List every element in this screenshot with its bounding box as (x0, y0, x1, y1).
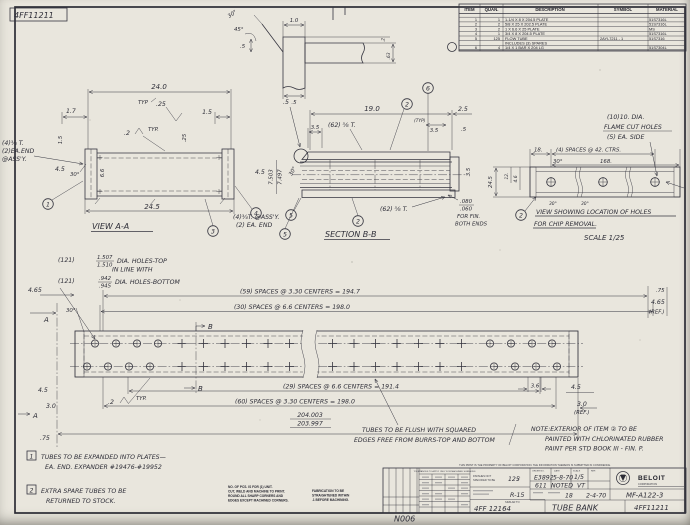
dim-half: .5 (283, 99, 289, 106)
holes-view-scale: SCALE 1/25 (584, 234, 625, 242)
fin-line1: FOR FIN. (457, 214, 480, 220)
general-notes: 1 TUBES TO BE EXPANDED INTO PLATES— EA. … (27, 451, 166, 505)
cell-item: 6 (475, 45, 477, 50)
paint-note-2: PAINTED WITH CHLORINATED RUBBER (545, 436, 663, 443)
note-2-line-2: RETURNED TO STOCK. (46, 498, 116, 505)
flame-note-1: (10)10. DIA. (607, 114, 644, 121)
angle-top: 30° (227, 9, 239, 20)
holes-top-label: DIA. HOLES-TOP (117, 258, 167, 265)
dim-4-5-left: 4.5 (38, 387, 48, 394)
balloon-6: 6 (426, 86, 430, 93)
pattern-number: 4FF 12164 (474, 505, 511, 513)
sp-2: CUT, WELD AND MACHINE TO PRINT. (228, 490, 285, 494)
cell-quan: 4 (498, 45, 501, 50)
row3-a: R-15 (510, 492, 524, 499)
col-desc: DESCRIPTION (535, 7, 564, 12)
holes-location-view: 18. (4) SPACES @ 42. CTRS. 30° 168. 24.5… (488, 114, 680, 242)
dim-6-6: 6.6 (100, 168, 106, 177)
holes-view-title-1: VIEW SHOWING LOCATION OF HOLES (536, 209, 651, 216)
table-row: 4 1 3/4 X 8 X 204.5 PLATE 51S7316L (475, 31, 668, 36)
dim-3-5-left: 3.5 (311, 125, 320, 131)
parts-table: ITEM QUAN. DESCRIPTION SYMBOL MATERIAL 1… (448, 4, 687, 52)
dim-3-0-left: 3.0 (46, 403, 56, 410)
holes-top-den: 1.510 (97, 263, 113, 269)
angle-30: 30° (553, 159, 563, 165)
angle-30: 30° (70, 172, 80, 178)
assy-note-1: (4)¾T. @ASS'Y. (233, 213, 279, 221)
view-aa-title: VIEW A-A (92, 222, 129, 231)
finish-label-2: SPECIFIED TO BE (473, 478, 495, 482)
cell-item: 5 (475, 36, 477, 41)
dim-4-5-right: 4.5 (255, 169, 265, 176)
balloon-3: 3 (211, 229, 215, 236)
dim-4-65-left: 4.65 (28, 287, 42, 294)
spaces-29: (29) SPACES @ 6.6 CENTERS = 191.4 (283, 383, 399, 391)
bank-weld-size: .2 (108, 399, 114, 406)
col-symbol: SYMBOL (614, 7, 633, 12)
table-row: 1 1 1-1/4 X 8 X 204.5 PLATE 51S7316L (475, 17, 668, 22)
dim-12: 12. (504, 173, 510, 180)
table-row: 3 2 1 X 6.6 X 25 PLATE MS (475, 26, 655, 31)
dim-3-6: 3.6 (531, 384, 540, 390)
holes-bot-label: DIA. HOLES-BOTTOM (115, 279, 180, 286)
cell-material: 51S7316 (649, 36, 665, 41)
dim-width: 1.0 (290, 18, 299, 24)
section-b-b: 19.0 2.5 .5 3.5 (62) ⅝ T. (TYP) 3.5 .5 3… (283, 83, 488, 240)
end-note-3: @ASS'Y. (2, 155, 27, 163)
dim-4-5-right: 4.5 (571, 384, 581, 391)
holes-bot-qty: (121) (58, 278, 75, 285)
holes-view-title-2: FOR CHIP REMOVAL. (534, 221, 597, 228)
fin-line2: BOTH ENDS (455, 222, 488, 228)
col-material: MATERIAL (656, 7, 678, 12)
section-a-top: A (43, 316, 49, 324)
break-angle-a: 30° (549, 201, 557, 207)
spaces-59: (59) SPACES @ 3.30 CENTERS = 194.7 (240, 288, 360, 296)
dim-25: .25 (156, 101, 166, 108)
note-2-number: 2 (30, 488, 34, 495)
angle-30: 30° (288, 166, 298, 178)
holes-mid-label: IN LINE WITH (112, 267, 153, 274)
dim-204-den: 203.997 (297, 421, 323, 428)
balloon-2-bottom: 2 (356, 219, 360, 226)
balloon-2-top: 2 (405, 102, 409, 109)
confidence-note: THIS PRINT IS THE PROPERTY OF BELOIT COR… (459, 463, 611, 467)
section-a-bottom: A (32, 412, 38, 420)
revision-balloon (448, 43, 457, 52)
flush-note-1: TUBES TO BE FLUSH WITH SQUARED (362, 427, 476, 434)
brand-name: BELOIT (638, 475, 665, 482)
row2-b: NOTED (551, 483, 573, 490)
spaces-30: (30) SPACES @ 6.6 CENTERS = 198.0 (234, 303, 350, 311)
note-1-line-1: TUBES TO BE EXPANDED INTO PLATES— (41, 454, 166, 461)
sheet-code: N006 (394, 515, 415, 524)
ref-bottom: (REF.) (574, 410, 589, 416)
title-block: THIS PRINT IS THE PROPERTY OF BELOIT COR… (383, 463, 686, 524)
dim-3-5-rot: 3.5 (466, 167, 472, 176)
row3-c: 2-4-70 (586, 493, 606, 500)
weld-prep-detail: .63 .2 1.0 45° 30° .5 .5 (227, 9, 396, 106)
dim-point2: .2 (381, 38, 387, 42)
paint-note-3: PAINT PER STD BOOK III - FIN. P. (545, 446, 644, 453)
row3-b: 18 (565, 493, 573, 500)
angle-30-left: 30° (66, 308, 76, 314)
col-quan: QUAN. (485, 7, 499, 12)
dim-75-bottom: .75 (40, 435, 50, 442)
cell-desc: 1/4 X 1 BAR X 204 LG (505, 45, 544, 50)
dim-18: 18. (534, 148, 543, 154)
sp-5: FABRICATION TO BE (312, 489, 344, 493)
assy-note-2: (2) EA. END (236, 222, 272, 229)
dim-75-right: .75 (656, 288, 665, 294)
weld-size: .2 (124, 130, 130, 137)
balloon-5: 5 (283, 232, 287, 239)
dim-4-65-right: 4.65 (651, 299, 665, 306)
paint-note-1: NOTE:EXTERIOR OF ITEM ② TO BE (531, 426, 637, 433)
standard-small-print: NO. OF PCS. IS FOR (1) UNIT. CUT, WELD A… (228, 485, 350, 503)
sp-4: EDGES EXCEPT MACHINED CORNERS. (228, 499, 289, 503)
order-label: ORDER NO. (532, 471, 545, 473)
flame-note-3: (5) EA. SIDE (607, 134, 644, 141)
finish-label-1: FINISHES NOT (473, 474, 492, 478)
corner-drawing-number: 4FF11211 (14, 11, 54, 20)
note-2-line-1: EXTRA SPARE TUBES TO BE (41, 488, 126, 495)
reference-drawing: MF-A122-3 (626, 492, 663, 500)
holes-bot-num: .942 (99, 276, 112, 282)
cell-material: 51S7304L (649, 45, 668, 50)
order-number: E3892 (534, 475, 554, 482)
fin-num: .080 (460, 199, 473, 205)
section-bb-title: SECTION B-B (325, 230, 377, 239)
dim-half-left: .5 (240, 44, 246, 50)
dim-1-5-left: 1.5 (58, 135, 64, 144)
brand-sub: CORPORATION (638, 482, 657, 486)
table-row: 5 125 FLOW TUBE 2AYL7211 - 1 51S7316 (475, 36, 665, 41)
ref-label: REF. (591, 471, 596, 473)
corner-drawing-number-box: 4FF11211 (10, 8, 67, 21)
note-1-number: 1 (30, 454, 34, 461)
scale-label: SCALE (573, 470, 581, 473)
tube-bank-view: (121) 1.507 1.510 DIA. HOLES-TOP IN LINE… (18, 255, 667, 453)
drawing-title: TUBE BANK (552, 504, 599, 513)
scan-noise (89, 69, 641, 471)
drawing-sheet: 4FF11211 ITEM QUAN. DESCRIPTION SYMBOL M… (0, 0, 690, 525)
sp-7: .1 BEFORE MACHINING. (312, 498, 349, 502)
weld-typ: TYP. (148, 127, 159, 133)
holes-bot-den: .945 (99, 284, 112, 290)
flame-note-2: FLAME CUT HOLES (604, 124, 662, 131)
holes-top-qty: (121) (58, 257, 75, 264)
dim-spaces: (4) SPACES @ 42. CTRS. (556, 148, 621, 154)
dim-1-5-right: 1.5 (202, 109, 212, 116)
balloon-1: 1 (46, 202, 50, 209)
drawing-canvas: 4FF11211 ITEM QUAN. DESCRIPTION SYMBOL M… (0, 0, 690, 525)
date-label: DATE (554, 470, 560, 473)
section-b-bottom: B (198, 385, 203, 393)
dim-4-5: 4.5 (55, 166, 65, 173)
row2-a: 611 (535, 483, 547, 490)
similar-label: SIMILAR TO (505, 500, 520, 504)
dim-7503: 7.503 (269, 169, 275, 185)
sp-3: ROUND ALL SHARP CORNERS AND (228, 494, 284, 498)
view-a-a: 24.0 1.7 TYP .25 1.5 .2 TYP. (4)¾ T. (2)… (2, 83, 299, 239)
dim-4-6: 4.6 (513, 175, 519, 182)
dim-1-7: 1.7 (66, 108, 76, 115)
sp-6: STRAIGHTENED WITHIN (312, 494, 350, 498)
end-note-2: (2)EA.END (2, 148, 35, 155)
tubes-note-bottom: (62) ⅝ T. (380, 206, 408, 213)
drawing-number: 4FF11211 (634, 504, 669, 512)
ref-right: (REF.) (649, 310, 664, 316)
dim-204-num: 204.003 (297, 412, 323, 419)
dim-2-5: 2.5 (458, 106, 468, 113)
cell-symbol: 2AYL7211 - 1 (600, 36, 623, 41)
balloon-5b: 5 (289, 213, 293, 220)
spaces-60: (60) SPACES @ 3.30 CENTERS = 198.0 (235, 398, 355, 406)
break-angle-b: 30° (581, 201, 589, 207)
dim-24-0: 24.0 (151, 83, 167, 91)
section-b-top: B (208, 323, 213, 331)
balloon-2: 2 (519, 213, 523, 220)
row2-c: VT (577, 483, 586, 490)
tubes-note-top: (62) ⅝ T. (328, 122, 356, 129)
scale-value: 1/5 (574, 474, 584, 481)
dim-19-0: 19.0 (364, 105, 380, 113)
dim-half-bottom: .5 (291, 100, 297, 106)
table-row: 2 2 5/8 X 25 X 202.5 PLATE 51S7316L (475, 22, 668, 27)
dim-half-right: .5 (461, 127, 467, 133)
typ-small: (TYP) (414, 118, 426, 124)
dim-168: 168. (600, 159, 612, 165)
note-1-line-2: EA. END. EXPANDER #19476-#19952 (45, 464, 162, 471)
dim-24-5: 24.5 (488, 175, 494, 188)
dim-24-5: 24.5 (144, 203, 160, 211)
dim-3-0-right: 3.0 (577, 401, 587, 408)
sp-1: NO. OF PCS. IS FOR (1) UNIT. (228, 485, 273, 489)
cell-quan: 125 (494, 36, 501, 41)
table-row: 6 4 1/4 X 1 BAR X 204 LG 51S7304L (475, 45, 668, 50)
dim-63: .63 (386, 52, 392, 59)
typ-flag: TYP (138, 100, 149, 106)
angle-45: 45° (234, 27, 244, 33)
flush-note-2: EDGES FREE FROM BURRS-TOP AND BOTTOM (354, 437, 496, 444)
col-item: ITEM (464, 7, 475, 12)
beloit-logo: BELOIT CORPORATION (617, 472, 685, 487)
end-note-1: (4)¾ T. (2, 140, 24, 147)
fin-den: .060 (460, 207, 473, 213)
bank-weld-typ: TYP. (136, 396, 147, 402)
dim-3-5-right: 3.5 (430, 128, 439, 134)
dim-25-inner: .25 (182, 133, 188, 142)
dim-7497: 7.497 (278, 169, 284, 185)
holes-top-num: 1.507 (97, 255, 113, 261)
tolerance-header: TOLERANCES TO APPLY ONLY FOR MACHINED SU… (414, 470, 476, 473)
date-value: 5-8-70 (553, 475, 573, 482)
